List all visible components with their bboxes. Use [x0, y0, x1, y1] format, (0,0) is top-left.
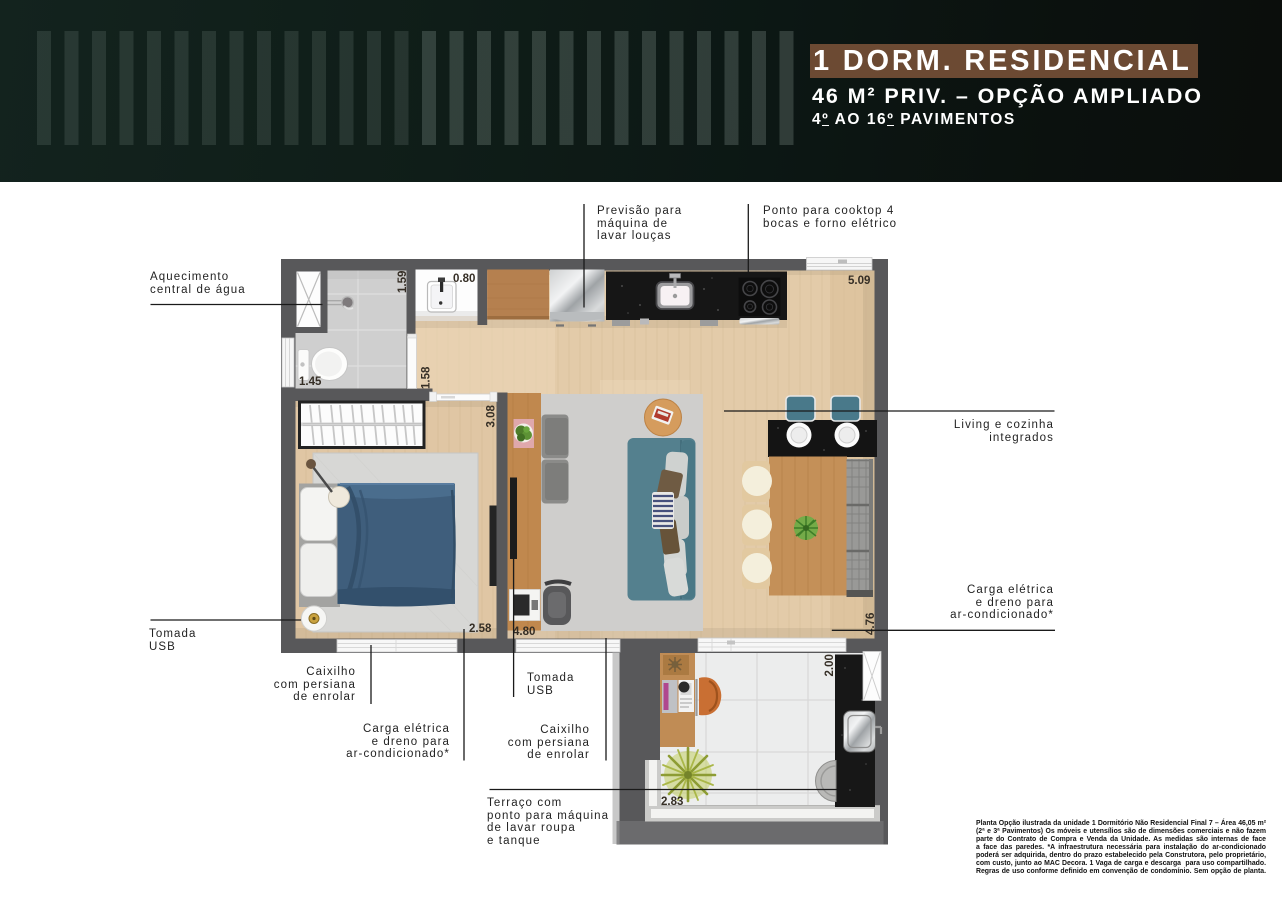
svg-text:2.00: 2.00	[824, 654, 836, 676]
svg-text:1.59: 1.59	[397, 271, 409, 293]
svg-text:2.83: 2.83	[661, 796, 683, 808]
svg-text:3.08: 3.08	[486, 405, 498, 428]
svg-text:4.76: 4.76	[865, 613, 877, 635]
svg-text:1.58: 1.58	[421, 366, 433, 389]
svg-text:0.80: 0.80	[453, 273, 475, 285]
svg-text:5.09: 5.09	[848, 275, 870, 287]
svg-text:2.58: 2.58	[469, 623, 492, 635]
svg-text:1.45: 1.45	[299, 376, 322, 388]
svg-text:4.80: 4.80	[513, 626, 535, 638]
